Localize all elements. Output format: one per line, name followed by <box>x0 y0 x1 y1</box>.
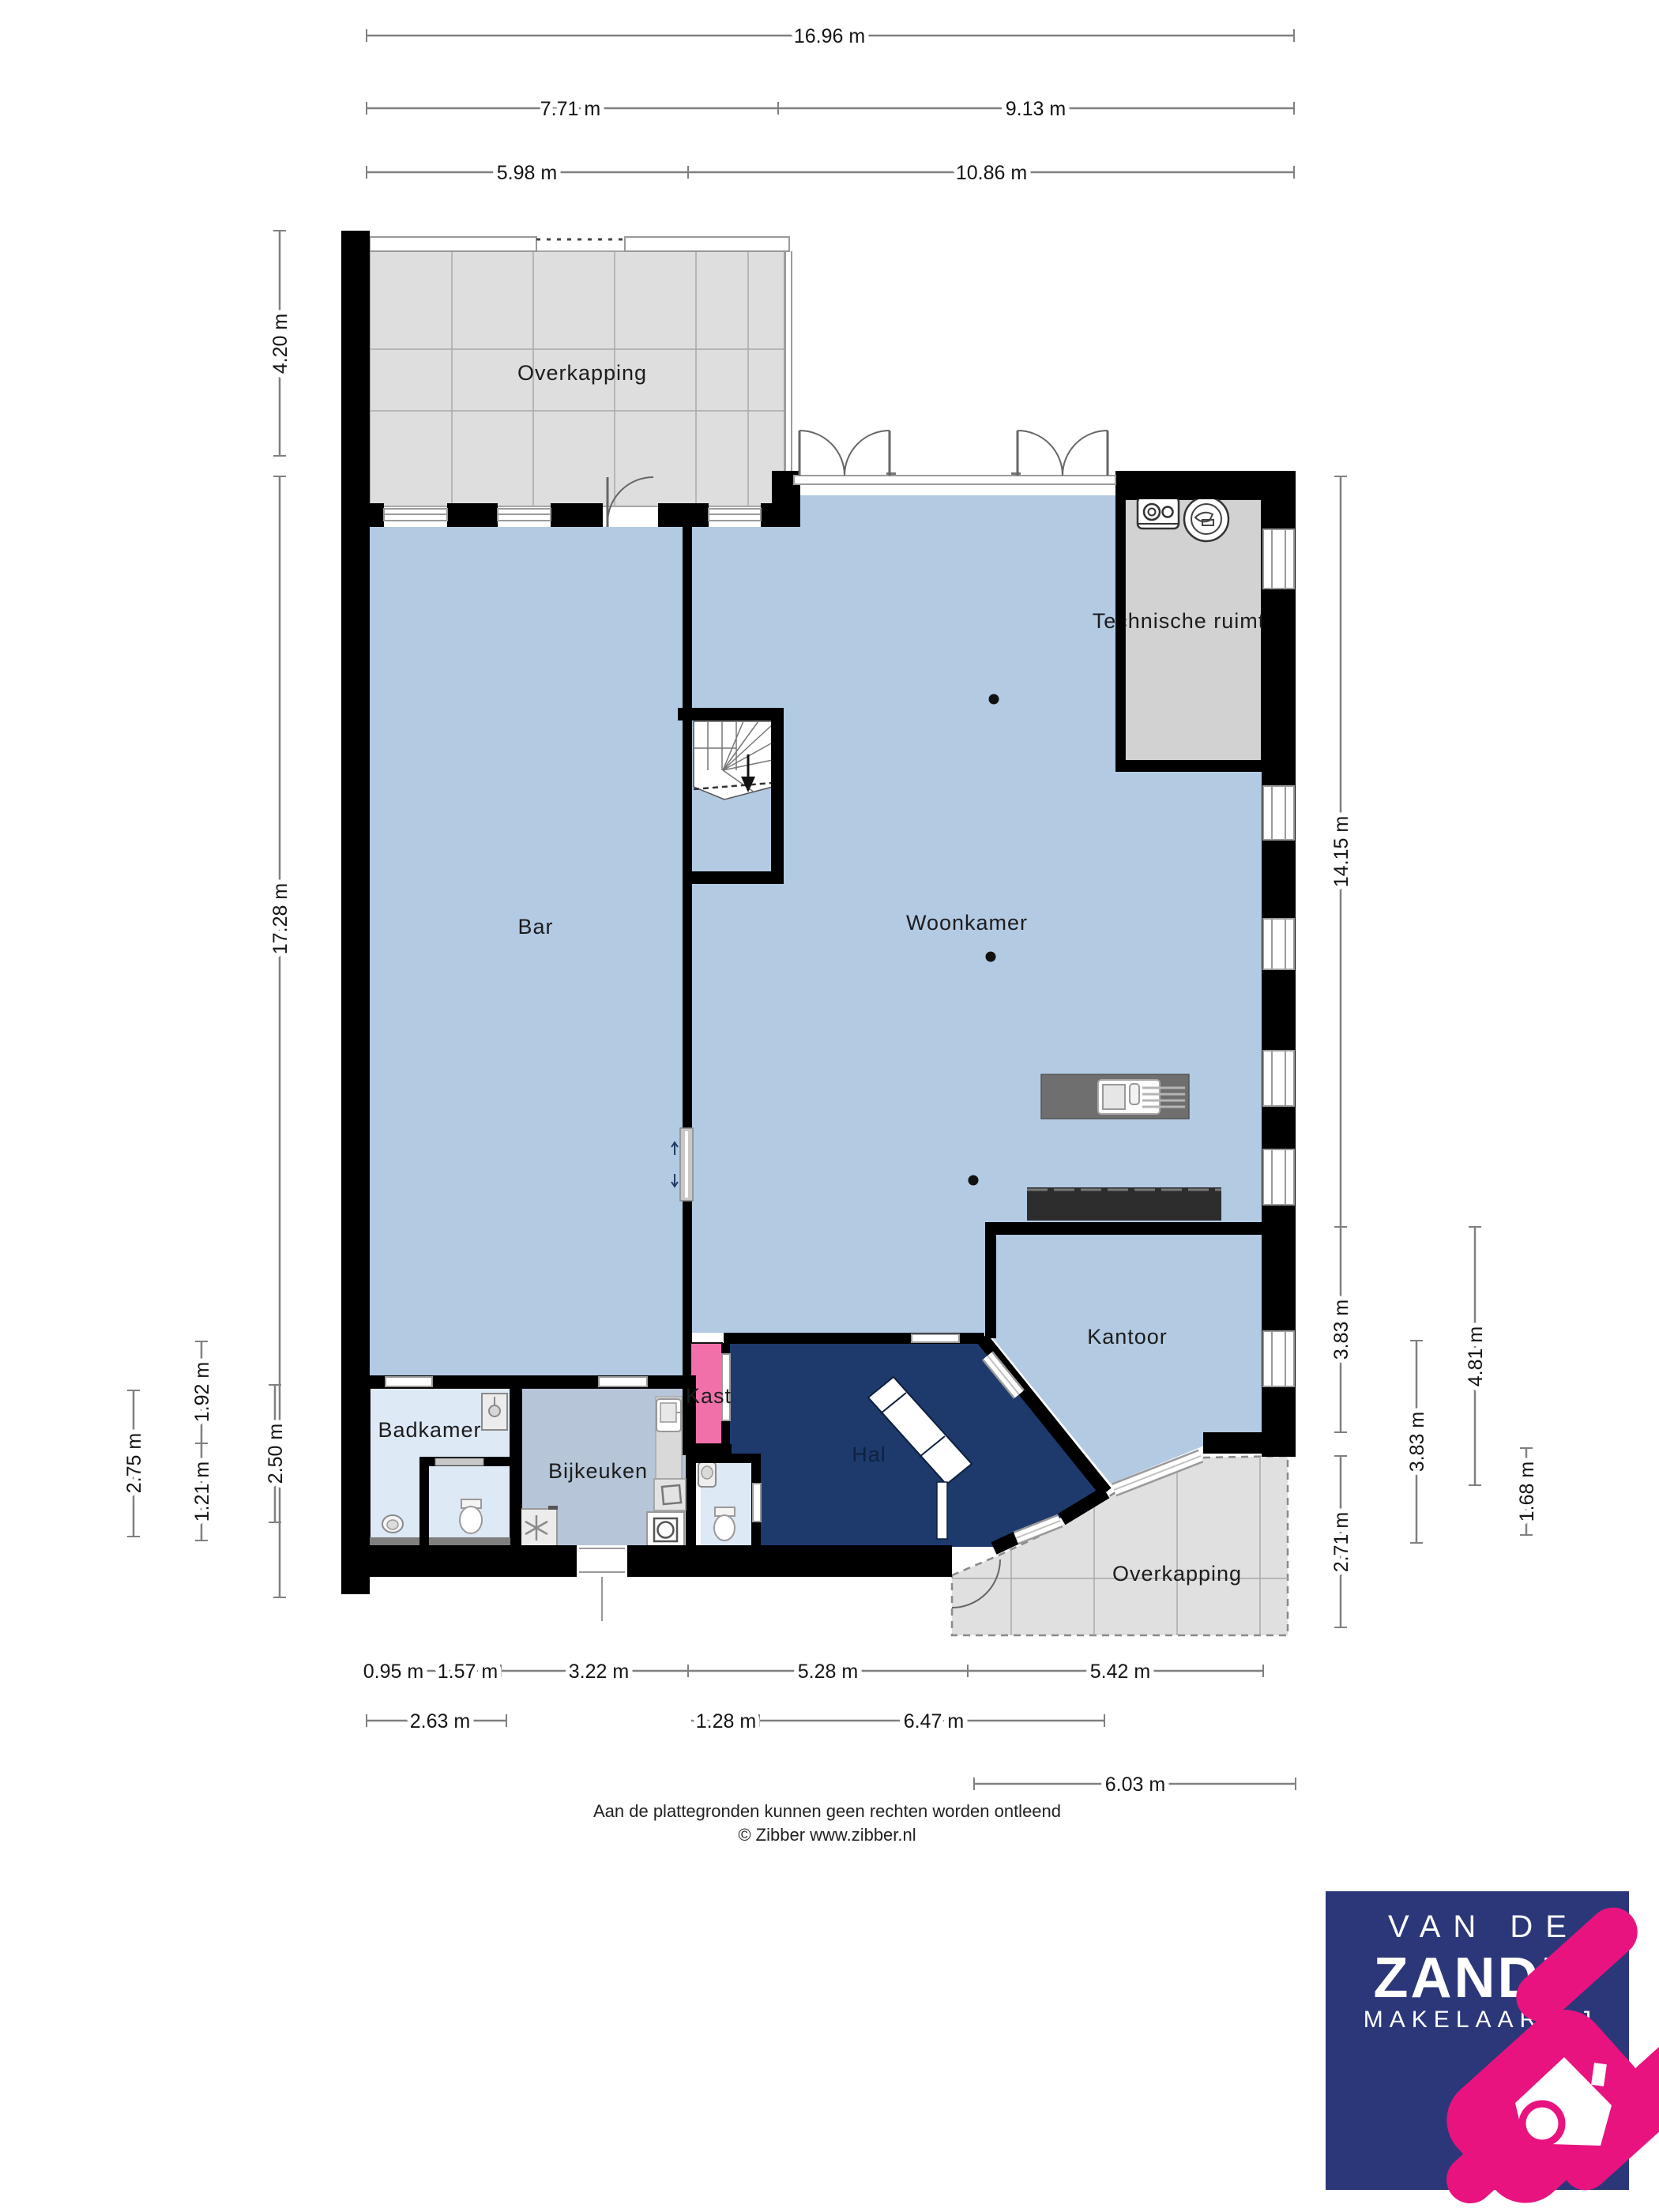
footer: Aan de plattegronden kunnen geen rechten… <box>593 1801 1061 1845</box>
room-label-badkamer: Badkamer <box>378 1418 481 1442</box>
dimensions-bottom: 0.95 m 1.57 m 3.22 m 5.28 m 5.42 m 2.63 … <box>363 1661 1296 1796</box>
room-label-hal: Hal <box>852 1443 886 1466</box>
footer-disclaimer: Aan de plattegronden kunnen geen rechten… <box>593 1801 1061 1821</box>
dim-b2: 1.57 m <box>438 1661 498 1683</box>
heat-pump-icon <box>1184 497 1228 541</box>
shower-icon <box>482 1394 507 1430</box>
dimensions-top: 16.96 m 7.71 m 9.13 m 5.98 m 10.86 m <box>367 25 1294 184</box>
dim-right-main: 14.15 m <box>1330 816 1352 887</box>
dim-b1: 0.95 m <box>363 1661 423 1683</box>
sideboard-icon <box>1027 1187 1221 1221</box>
agency-logo: VAN DE ZANDE MAKELAARDIJ <box>1326 1891 1659 2212</box>
dim-b9: 6.03 m <box>1105 1774 1165 1796</box>
back-door <box>577 1545 627 1621</box>
room-label-overkapping-bottom: Overkapping <box>1112 1562 1242 1586</box>
dim-b8: 6.47 m <box>904 1710 964 1732</box>
lamp-dot-icon <box>989 694 999 705</box>
washing-machine-icon <box>647 1512 684 1547</box>
dim-right-383b: 3.83 m <box>1406 1412 1428 1472</box>
dim-b6: 2.63 m <box>410 1710 470 1732</box>
toilet-icon <box>714 1507 735 1540</box>
room-label-bar: Bar <box>517 915 553 939</box>
utility-sink-icon <box>656 1399 683 1431</box>
dimensions-right: 14.15 m 3.83 m 2.71 m 3.83 m 4.81 m 1.68… <box>1330 476 1538 1627</box>
logo-line1: VAN DE <box>1388 1909 1579 1944</box>
double-door-icon <box>1018 431 1108 476</box>
dim-left-upper: 1.92 m <box>191 1362 213 1422</box>
dim-left-overkapping: 4.20 m <box>269 314 292 374</box>
dim-b7: 1.28 m <box>696 1710 756 1732</box>
dim-right-kantoor: 3.83 m <box>1330 1300 1352 1360</box>
lamp-dot-icon <box>969 1176 979 1186</box>
kitchen-island-icon <box>1041 1074 1189 1119</box>
room-label-kast: Kast <box>686 1384 732 1408</box>
room-label-kantoor: Kantoor <box>1087 1325 1168 1349</box>
fridge-icon <box>516 1506 558 1547</box>
room-label-woonkamer: Woonkamer <box>906 911 1028 935</box>
dim-left-badkamer-h: 2.75 m <box>123 1433 145 1493</box>
dim-top2-right: 10.86 m <box>956 162 1027 184</box>
dim-top2-left: 5.98 m <box>497 162 557 184</box>
double-door-icon <box>799 431 890 476</box>
dim-right-168: 1.68 m <box>1516 1461 1538 1522</box>
room-label-overkapping-top: Overkapping <box>517 361 647 385</box>
bar-floor <box>370 527 687 1379</box>
toilet-icon <box>460 1499 482 1533</box>
stairs-icon <box>694 721 773 799</box>
floorplan-page: Technische ruimte <box>0 0 1659 2212</box>
dim-left-250: 2.50 m <box>265 1424 287 1484</box>
dim-top-right: 9.13 m <box>1006 98 1066 120</box>
dim-b4: 5.28 m <box>798 1661 858 1683</box>
washbasin-icon <box>698 1462 716 1487</box>
dim-left-lower: 1.21 m <box>191 1461 213 1522</box>
boiler-icon <box>1138 497 1179 529</box>
dim-top-left: 7.71 m <box>540 98 600 120</box>
dim-total-width: 16.96 m <box>794 25 865 47</box>
dim-right-overkapping: 2.71 m <box>1330 1512 1352 1572</box>
dimensions-left: 4.20 m 17.28 m 2.75 m 1.92 m 1.21 m 2.50… <box>123 231 292 1597</box>
dim-left-main: 17.28 m <box>269 883 292 954</box>
room-label-bijkeuken: Bijkeuken <box>548 1459 648 1483</box>
floorplan-drawing: Technische ruimte <box>0 0 1659 2212</box>
dim-right-481: 4.81 m <box>1465 1326 1487 1386</box>
dim-b5: 5.42 m <box>1090 1661 1150 1683</box>
dim-b3: 3.22 m <box>569 1661 629 1683</box>
lamp-dot-icon <box>986 952 996 962</box>
footer-copyright: © Zibber www.zibber.nl <box>738 1825 916 1845</box>
washbasin-icon <box>382 1515 403 1533</box>
laundry-basket-icon <box>654 1479 686 1510</box>
